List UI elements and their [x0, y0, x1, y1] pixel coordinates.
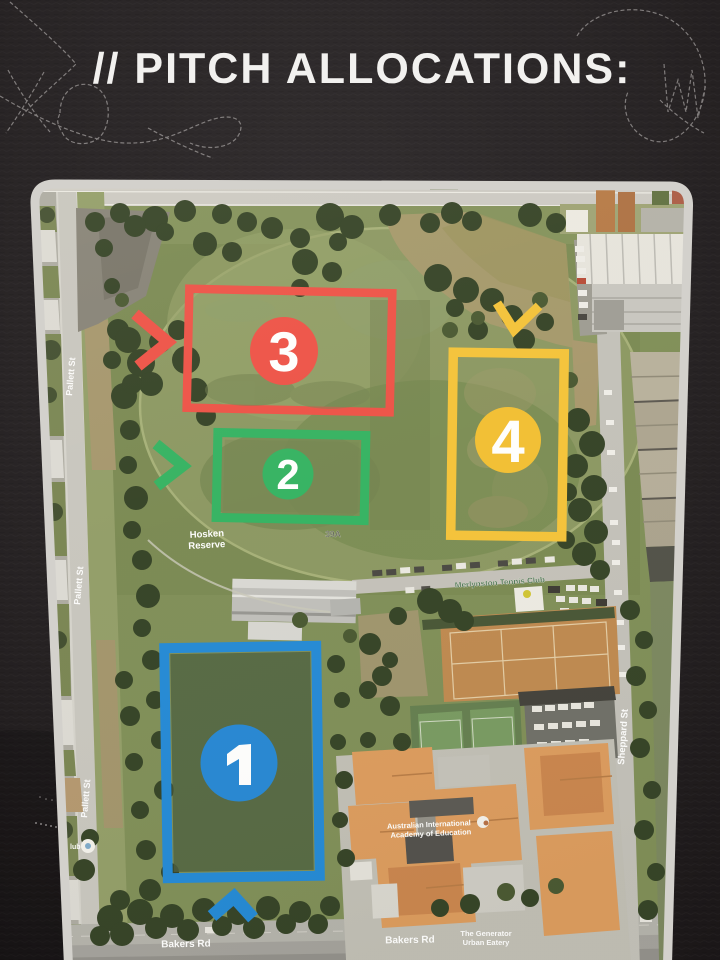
svg-text:// PITCH ALLOCATIONS:: // PITCH ALLOCATIONS:: [93, 45, 632, 93]
